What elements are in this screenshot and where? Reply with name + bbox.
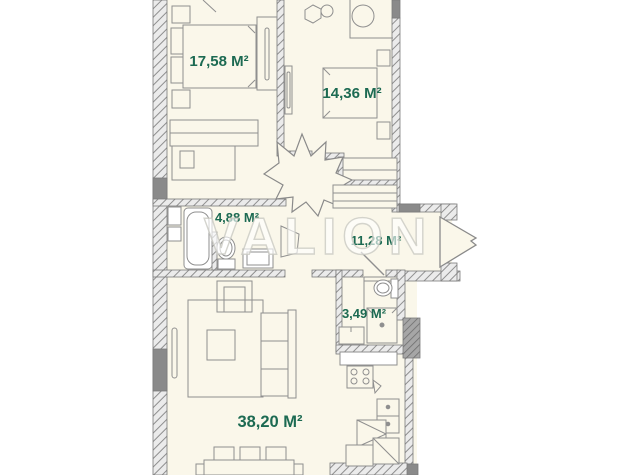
wc-area-label: 3,49 M² (342, 306, 387, 321)
dresser-icon (170, 120, 258, 146)
sink-icon (339, 327, 364, 344)
desk-icon (172, 146, 235, 180)
counter-top-icon (340, 352, 397, 365)
armchair-icon (217, 281, 252, 312)
sofa-icon (261, 310, 296, 398)
coffee-table-icon (207, 330, 235, 360)
closet-shelves-icon (343, 158, 397, 180)
vent-shaft (403, 318, 420, 358)
mirror-icon (285, 66, 292, 114)
entrance-door-arrow (440, 217, 476, 267)
wardrobe-icon (257, 17, 277, 90)
bedroom-2-area-label: 14,36 M² (322, 85, 381, 102)
living-area-label: 38,20 M² (237, 413, 303, 431)
bedroom-1-area-label: 17,58 M² (189, 53, 248, 70)
wardrobe-icon (333, 185, 397, 208)
watermark: VALION (204, 208, 433, 266)
floor-plan-svg: 17,58 M² 14,36 M² 4,88 M² 11,28 M² 3,49 … (0, 0, 630, 475)
floor-plan-image: 17,58 M² 14,36 M² 4,88 M² 11,28 M² 3,49 … (0, 0, 630, 475)
